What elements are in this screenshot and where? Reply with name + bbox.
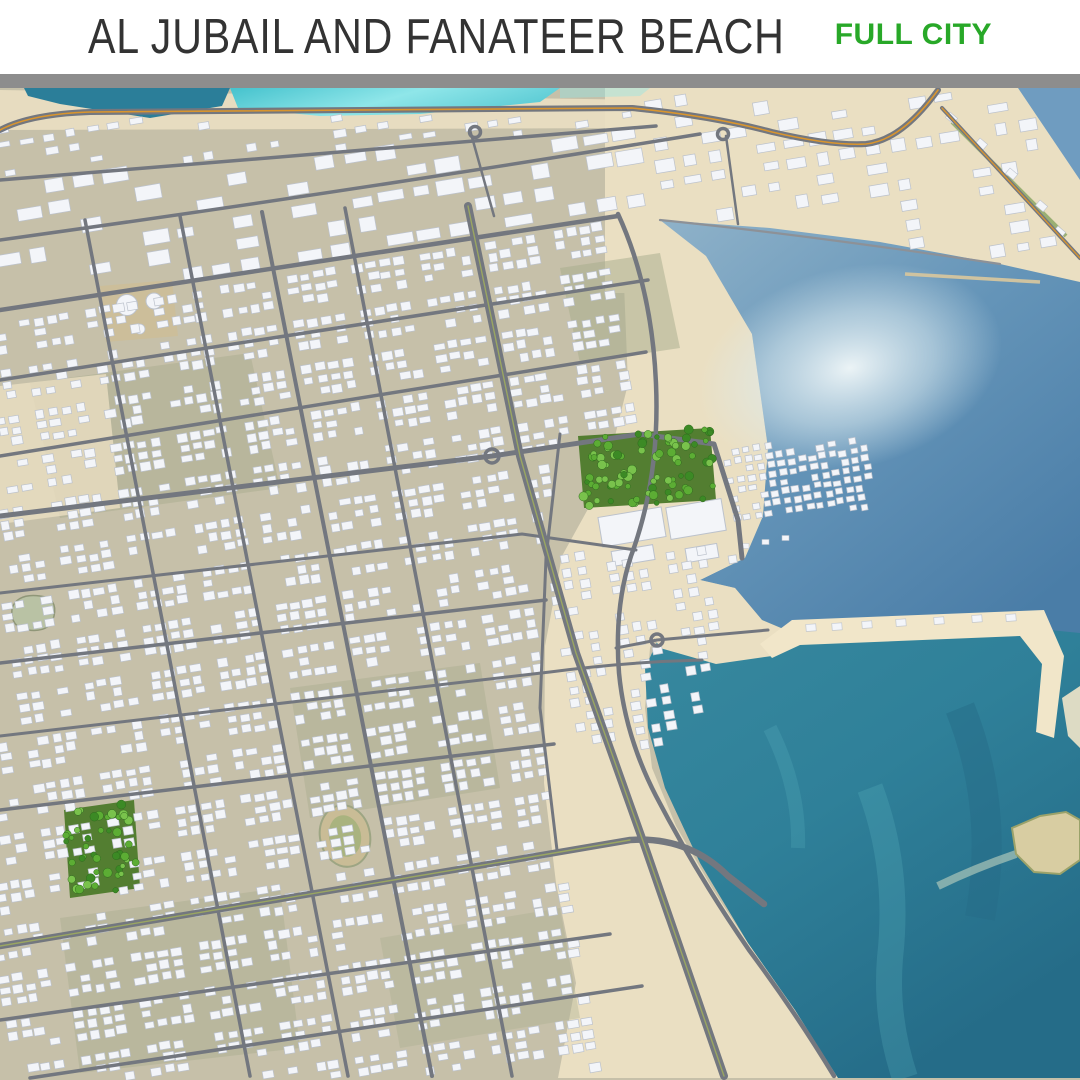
full-city-badge: FULL CITY <box>835 18 992 52</box>
map-render <box>0 88 1080 1080</box>
product-image: AL JUBAIL AND FANATEER BEACH FULL CITY <box>0 0 1080 1080</box>
city-3d-map <box>0 88 1080 1080</box>
page-title: AL JUBAIL AND FANATEER BEACH <box>88 9 785 65</box>
title-bar: AL JUBAIL AND FANATEER BEACH FULL CITY <box>0 0 1080 74</box>
divider-bar <box>0 74 1080 88</box>
